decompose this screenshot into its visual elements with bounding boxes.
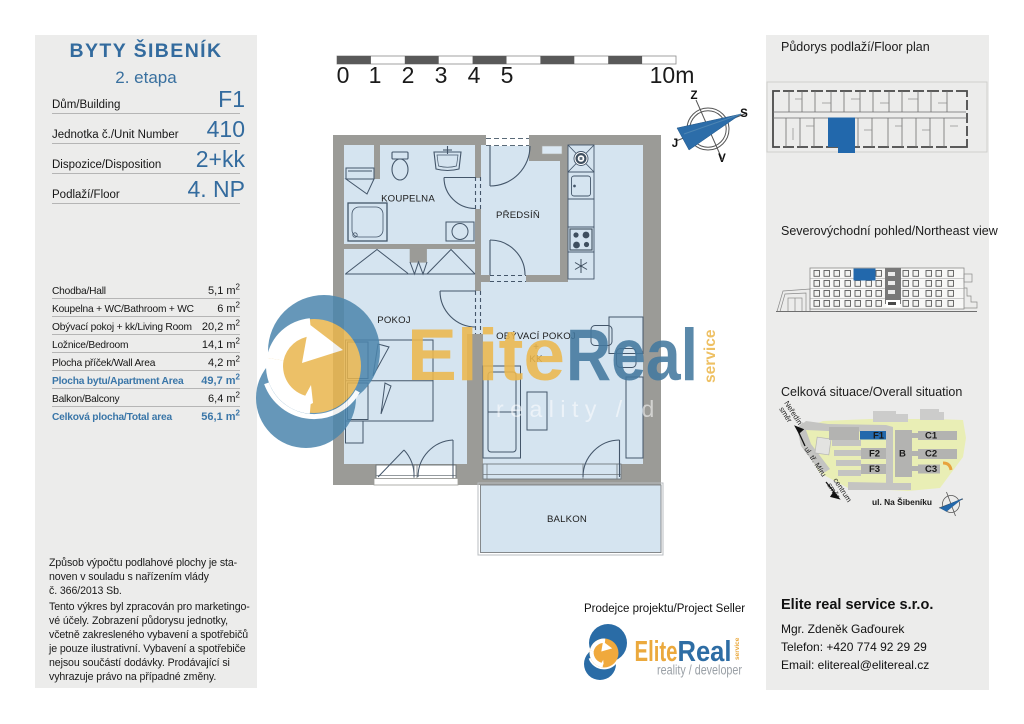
- svg-text:1: 1: [369, 62, 382, 88]
- svg-text:F1: F1: [873, 431, 885, 442]
- svg-text:service: service: [702, 329, 719, 383]
- svg-text:0: 0: [337, 62, 350, 88]
- svg-text:B: B: [899, 449, 906, 460]
- svg-text:service: service: [734, 637, 741, 660]
- svg-text:Z: Z: [690, 90, 697, 102]
- svg-text:10m: 10m: [650, 62, 695, 88]
- svg-text:Real: Real: [566, 315, 698, 396]
- svg-text:ul. Na Šibeníku: ul. Na Šibeníku: [872, 496, 932, 507]
- svg-text:C2: C2: [925, 449, 937, 460]
- svg-text:C3: C3: [925, 464, 937, 475]
- svg-text:KOUPELNA: KOUPELNA: [381, 194, 435, 205]
- svg-text:F3: F3: [869, 464, 880, 475]
- svg-text:V: V: [718, 153, 726, 165]
- svg-text:F2: F2: [869, 449, 880, 460]
- svg-text:2: 2: [402, 62, 415, 88]
- svg-text:BALKON: BALKON: [547, 514, 587, 525]
- svg-text:3: 3: [435, 62, 448, 88]
- svg-text:reality / de: reality / de: [496, 396, 680, 422]
- svg-text:Elite: Elite: [407, 315, 565, 396]
- svg-text:4: 4: [468, 62, 481, 88]
- svg-text:PŘEDSÍŇ: PŘEDSÍŇ: [496, 210, 540, 221]
- svg-text:C1: C1: [925, 431, 938, 442]
- svg-text:POKOJ: POKOJ: [377, 315, 411, 326]
- svg-text:5: 5: [501, 62, 514, 88]
- svg-text:reality / developer: reality / developer: [657, 663, 742, 678]
- svg-text:S: S: [740, 108, 748, 120]
- svg-text:J: J: [672, 138, 678, 150]
